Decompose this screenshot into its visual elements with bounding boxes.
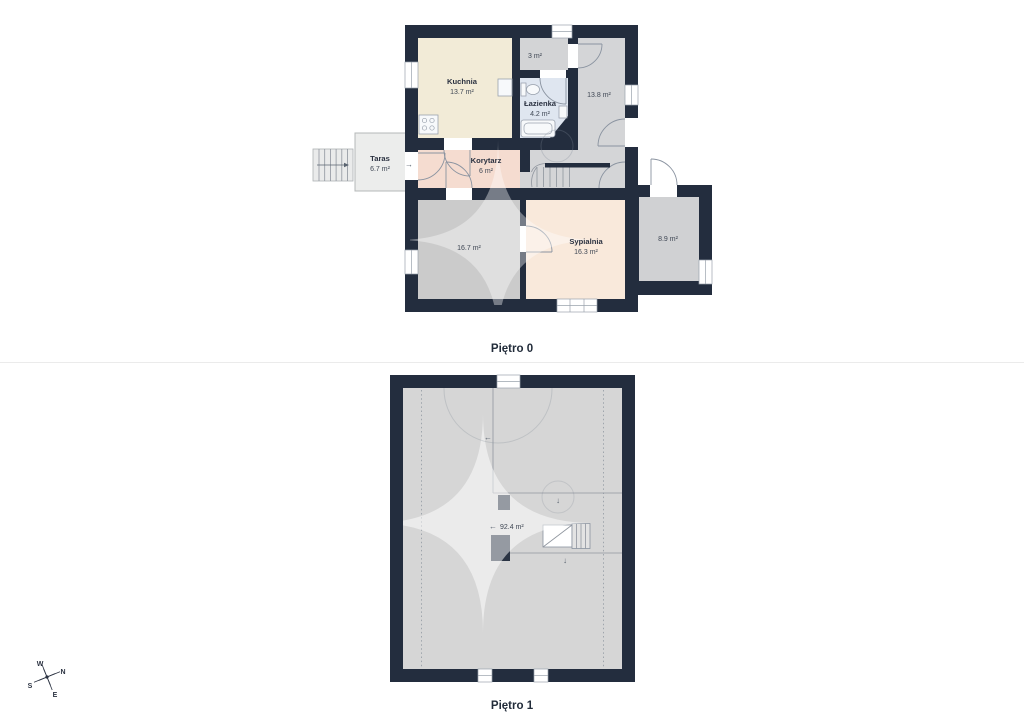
compass-center bbox=[45, 675, 48, 678]
floor-1-title: Piętro 1 bbox=[491, 700, 534, 712]
room-area: 6 m² bbox=[479, 168, 494, 175]
room-label: Łazienka bbox=[524, 99, 557, 108]
floor-1-plan: ← ↓ ↓ ← 92.4 m² Piętro 1 bbox=[373, 335, 635, 712]
room-label: Sypialnia bbox=[569, 237, 603, 246]
room-area: 8.9 m² bbox=[658, 236, 679, 243]
counter-icon bbox=[498, 79, 512, 96]
floor-0-title: Piętro 0 bbox=[491, 343, 533, 355]
sink-icon bbox=[559, 106, 567, 118]
floorplan-page: → Kuchnia 13.7 m² 3 m² Łazienka 4.2 m² 1… bbox=[0, 0, 1024, 724]
room-label: Taras bbox=[370, 154, 390, 163]
room-area: 16.7 m² bbox=[457, 245, 481, 252]
stove-icon bbox=[419, 115, 438, 134]
compass-south-label: S bbox=[28, 683, 33, 690]
room-area: 4.2 m² bbox=[530, 111, 551, 118]
room-area: 3 m² bbox=[528, 53, 543, 60]
door-opening bbox=[444, 138, 472, 150]
slope-arrow-icon: ↓ bbox=[556, 496, 560, 505]
door-opening bbox=[650, 185, 677, 197]
room-label: Korytarz bbox=[471, 156, 502, 165]
compass-west-label: W bbox=[37, 661, 44, 668]
slope-arrow-icon: ↓ bbox=[563, 556, 567, 565]
entrance-arrow-icon: → bbox=[405, 160, 413, 169]
exterior-steps bbox=[313, 149, 353, 181]
room-area: 6.7 m² bbox=[370, 166, 391, 173]
slope-arrow-icon: ← bbox=[484, 433, 492, 442]
compass-rose: N S E W bbox=[28, 661, 66, 699]
door-opening bbox=[568, 44, 578, 68]
bathtub-icon bbox=[521, 120, 555, 137]
room-area: 13.7 m² bbox=[450, 89, 474, 96]
stair-landing-edge bbox=[545, 163, 610, 168]
door-arc bbox=[651, 159, 677, 185]
room-area: 16.3 m² bbox=[574, 249, 598, 256]
floor-0-plan: → Kuchnia 13.7 m² 3 m² Łazienka 4.2 m² 1… bbox=[313, 25, 712, 355]
room-label: Kuchnia bbox=[447, 77, 478, 86]
door-opening bbox=[625, 118, 638, 147]
compass-north-label: N bbox=[60, 669, 65, 676]
room-korytarz bbox=[418, 150, 520, 188]
door-opening bbox=[540, 70, 566, 78]
area-arrow-icon: ← bbox=[489, 522, 497, 531]
compass-east-label: E bbox=[53, 692, 58, 699]
door-opening bbox=[446, 188, 472, 200]
room-area: 13.8 m² bbox=[587, 92, 611, 99]
toilet-icon bbox=[521, 83, 540, 96]
room-area: 92.4 m² bbox=[500, 524, 524, 531]
floorplan-canvas: → Kuchnia 13.7 m² 3 m² Łazienka 4.2 m² 1… bbox=[0, 0, 1024, 724]
